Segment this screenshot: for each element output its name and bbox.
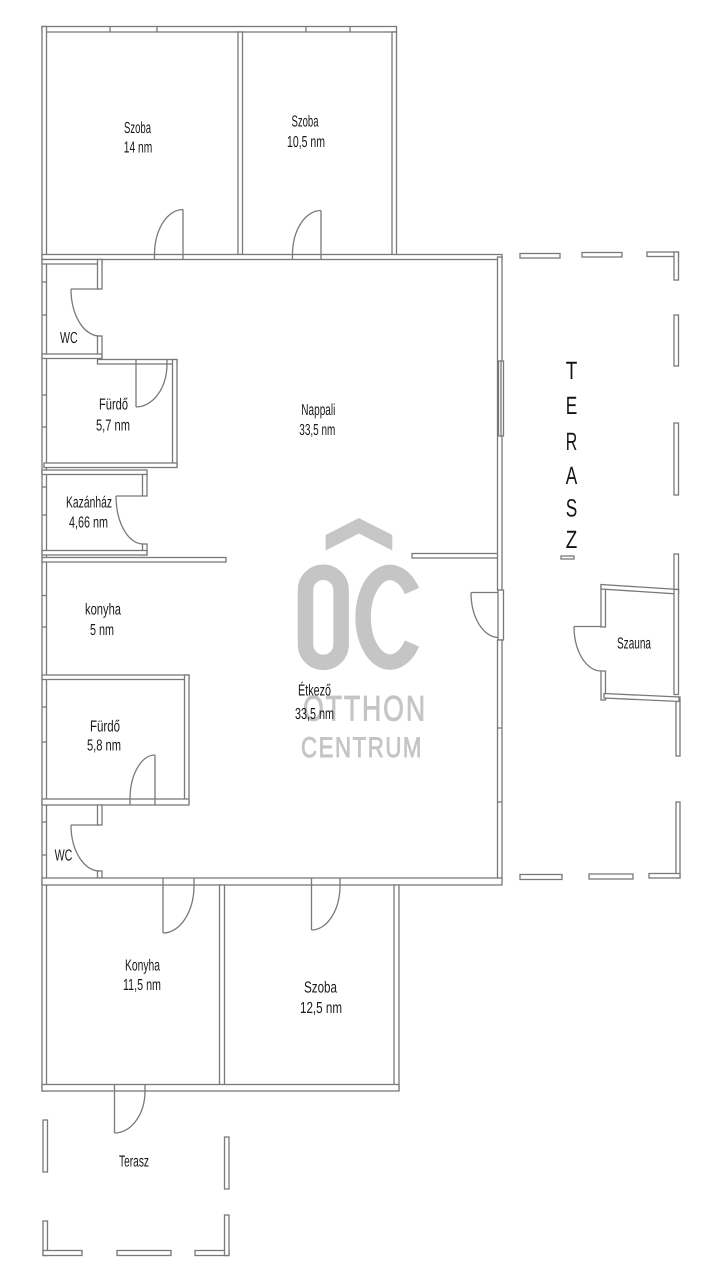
svg-text:Nappali: Nappali: [301, 402, 335, 419]
svg-text:konyha: konyha: [85, 602, 121, 619]
svg-text:Z: Z: [566, 526, 578, 554]
svg-text:Szoba: Szoba: [292, 113, 319, 130]
svg-text:Szoba: Szoba: [124, 120, 151, 137]
svg-text:Terasz: Terasz: [119, 1154, 149, 1171]
svg-text:Fürdő: Fürdő: [90, 719, 120, 736]
svg-text:Szoba: Szoba: [304, 979, 337, 996]
svg-text:R: R: [566, 428, 578, 456]
svg-text:Étkező: Étkező: [298, 682, 331, 700]
svg-text:WC: WC: [55, 848, 73, 865]
svg-text:WC: WC: [60, 330, 78, 347]
svg-text:T: T: [566, 357, 578, 385]
svg-text:E: E: [566, 392, 578, 420]
svg-text:11,5 nm: 11,5 nm: [123, 977, 161, 994]
svg-text:33,5 nm: 33,5 nm: [299, 422, 335, 439]
svg-text:14 nm: 14 nm: [124, 140, 153, 157]
svg-text:CENTRUM: CENTRUM: [301, 732, 423, 764]
svg-text:Szauna: Szauna: [617, 635, 651, 652]
svg-text:33,5 nm: 33,5 nm: [295, 706, 334, 723]
svg-text:5,7 nm: 5,7 nm: [96, 418, 130, 435]
svg-text:10,5 nm: 10,5 nm: [287, 134, 325, 151]
svg-text:12,5 nm: 12,5 nm: [300, 1000, 342, 1017]
svg-text:Fürdő: Fürdő: [99, 396, 128, 413]
svg-text:5 nm: 5 nm: [90, 622, 114, 639]
svg-text:4,66 nm: 4,66 nm: [69, 515, 108, 532]
svg-text:5,8 nm: 5,8 nm: [87, 738, 121, 755]
svg-text:Kazánház: Kazánház: [66, 495, 112, 512]
svg-text:S: S: [566, 495, 578, 523]
svg-text:A: A: [566, 462, 578, 490]
svg-text:Konyha: Konyha: [125, 957, 160, 974]
